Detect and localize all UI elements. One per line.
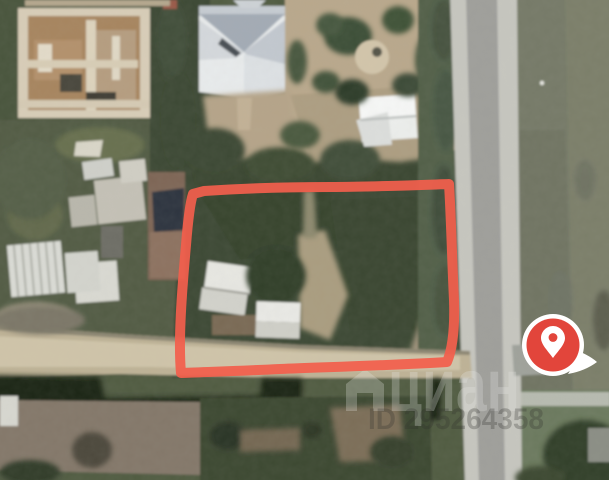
svg-text:ID 295264358: ID 295264358 [368, 403, 544, 436]
